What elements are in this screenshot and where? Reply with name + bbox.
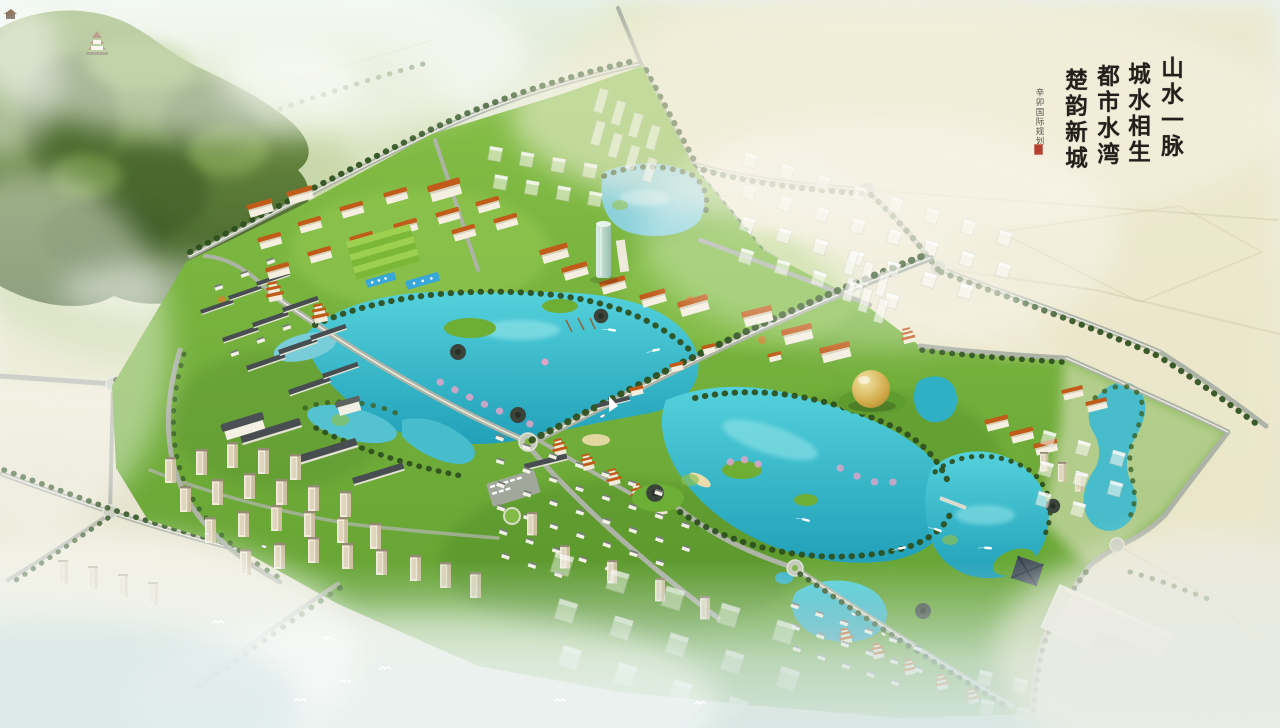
- urban-master-plan-rendering: 山水一脉 城水相生 都市水湾 楚韵新城 辛卯国际规划: [0, 0, 1280, 728]
- round-garden: [504, 508, 520, 524]
- aerial-scene: [0, 0, 1280, 728]
- hill-with-pavilion: [632, 484, 684, 512]
